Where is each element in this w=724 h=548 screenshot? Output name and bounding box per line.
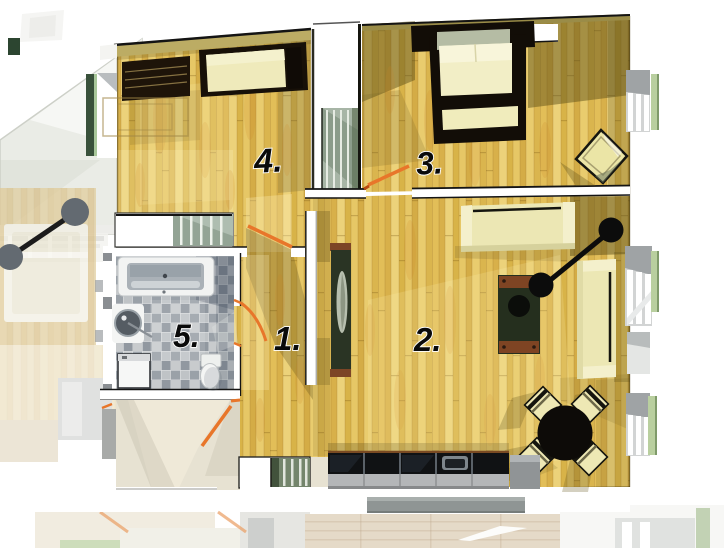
svg-text:2.: 2. — [413, 321, 442, 358]
svg-text:3.: 3. — [415, 144, 444, 181]
svg-text:1.: 1. — [274, 320, 302, 357]
svg-text:5.: 5. — [173, 318, 200, 354]
svg-text:4.: 4. — [252, 141, 283, 180]
